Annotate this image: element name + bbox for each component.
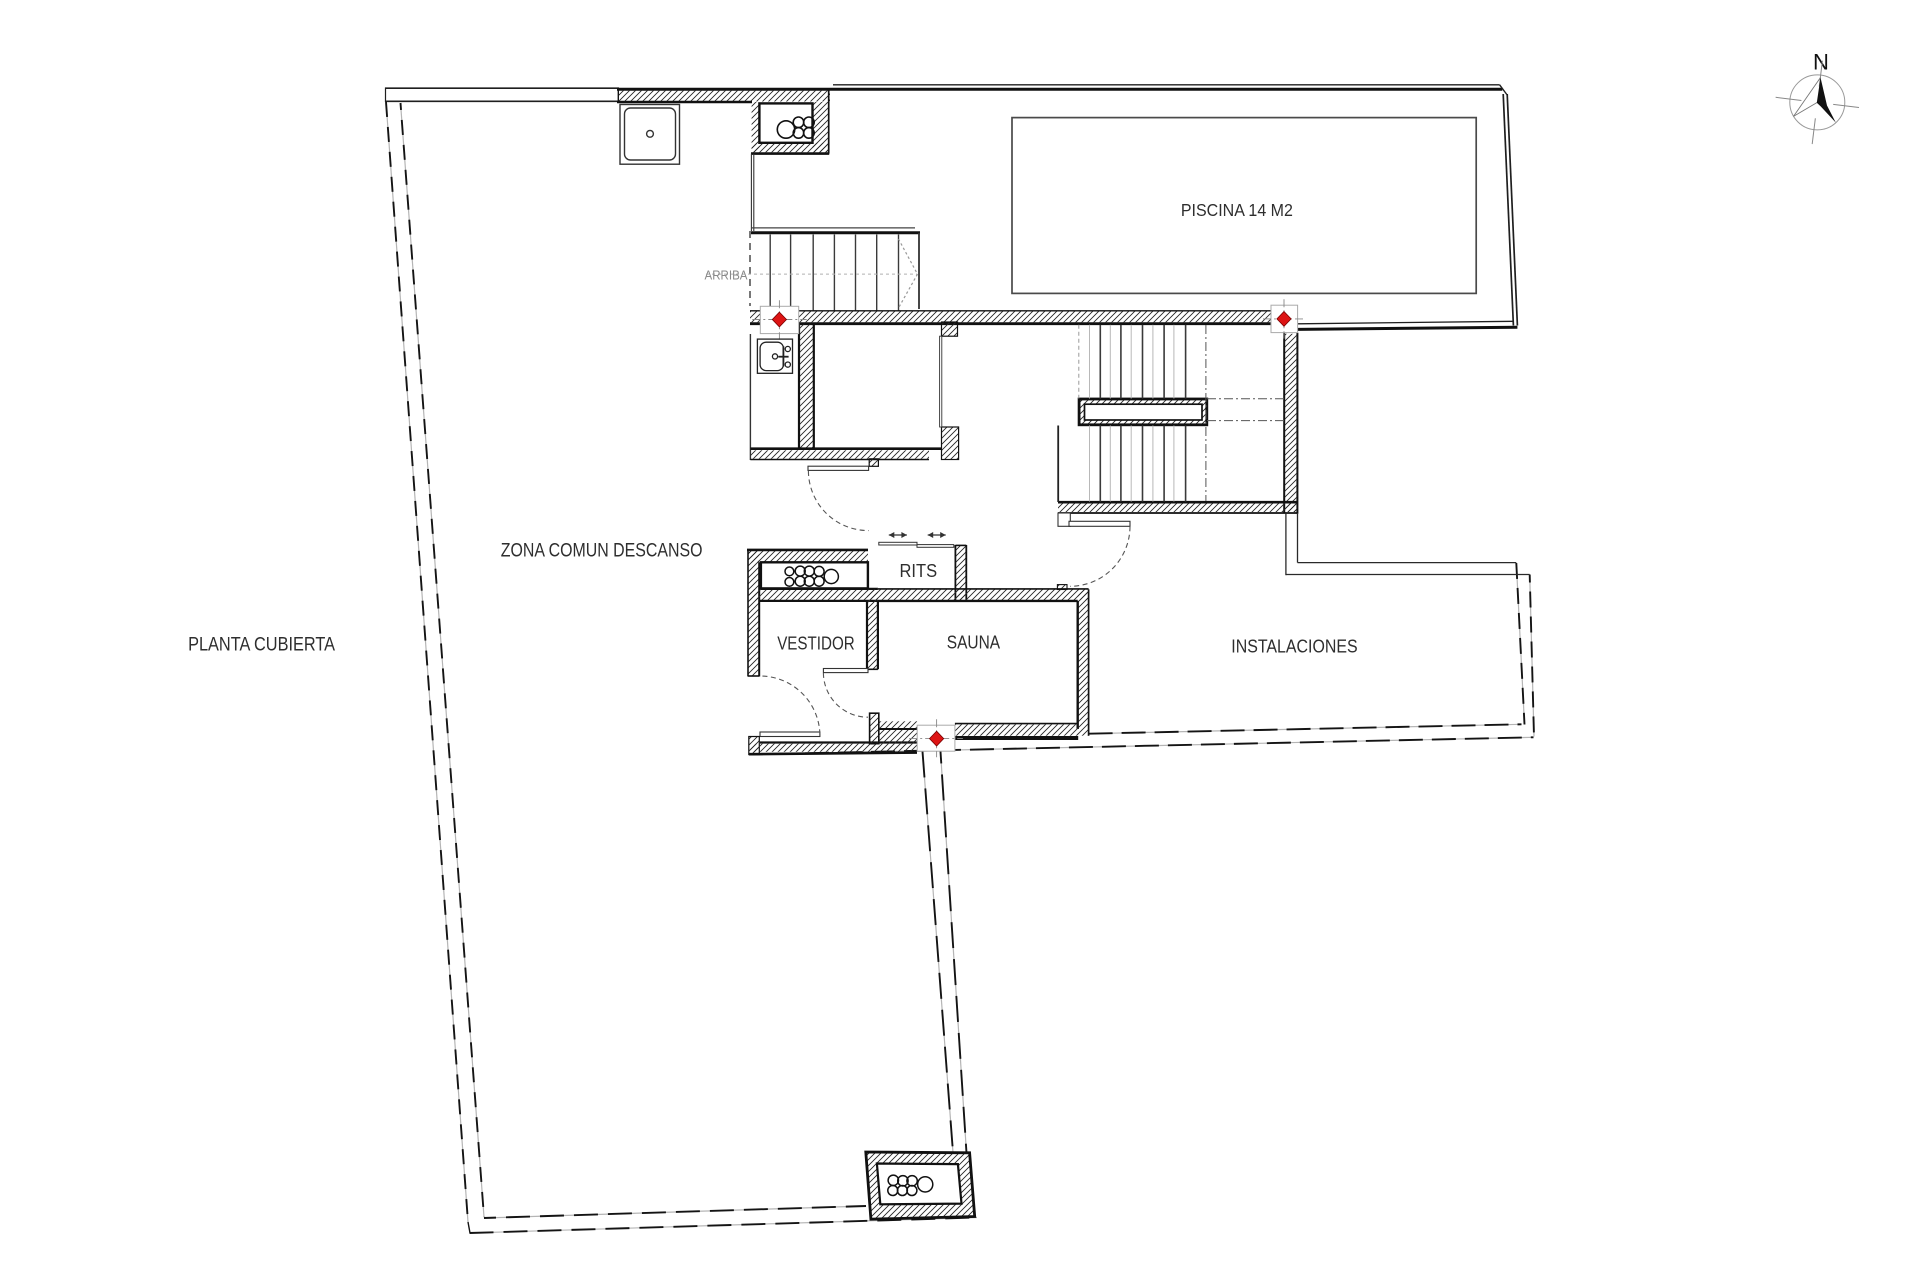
svg-text:SAUNA: SAUNA xyxy=(947,633,1000,653)
svg-text:ZONA COMUN DESCANSO: ZONA COMUN DESCANSO xyxy=(501,540,703,562)
svg-text:PISCINA 14 M2: PISCINA 14 M2 xyxy=(1181,200,1293,220)
svg-text:RITS: RITS xyxy=(900,561,938,581)
svg-text:ARRIBA: ARRIBA xyxy=(705,268,748,283)
svg-text:PLANTA CUBIERTA: PLANTA CUBIERTA xyxy=(188,635,335,656)
svg-text:VESTIDOR: VESTIDOR xyxy=(777,633,855,653)
svg-text:INSTALACIONES: INSTALACIONES xyxy=(1231,636,1357,656)
